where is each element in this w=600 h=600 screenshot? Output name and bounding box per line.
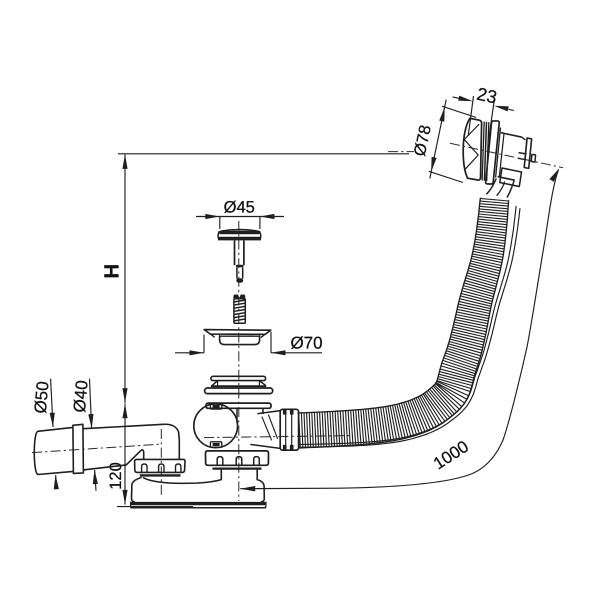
svg-text:1000: 1000: [430, 437, 472, 474]
svg-text:Ø78: Ø78: [411, 124, 435, 158]
svg-text:H: H: [101, 264, 124, 279]
svg-text:Ø40: Ø40: [70, 380, 92, 414]
svg-text:Ø50: Ø50: [31, 381, 53, 415]
svg-text:23: 23: [475, 84, 499, 108]
svg-text:Ø45: Ø45: [224, 199, 255, 217]
svg-text:Ø70: Ø70: [290, 334, 322, 353]
